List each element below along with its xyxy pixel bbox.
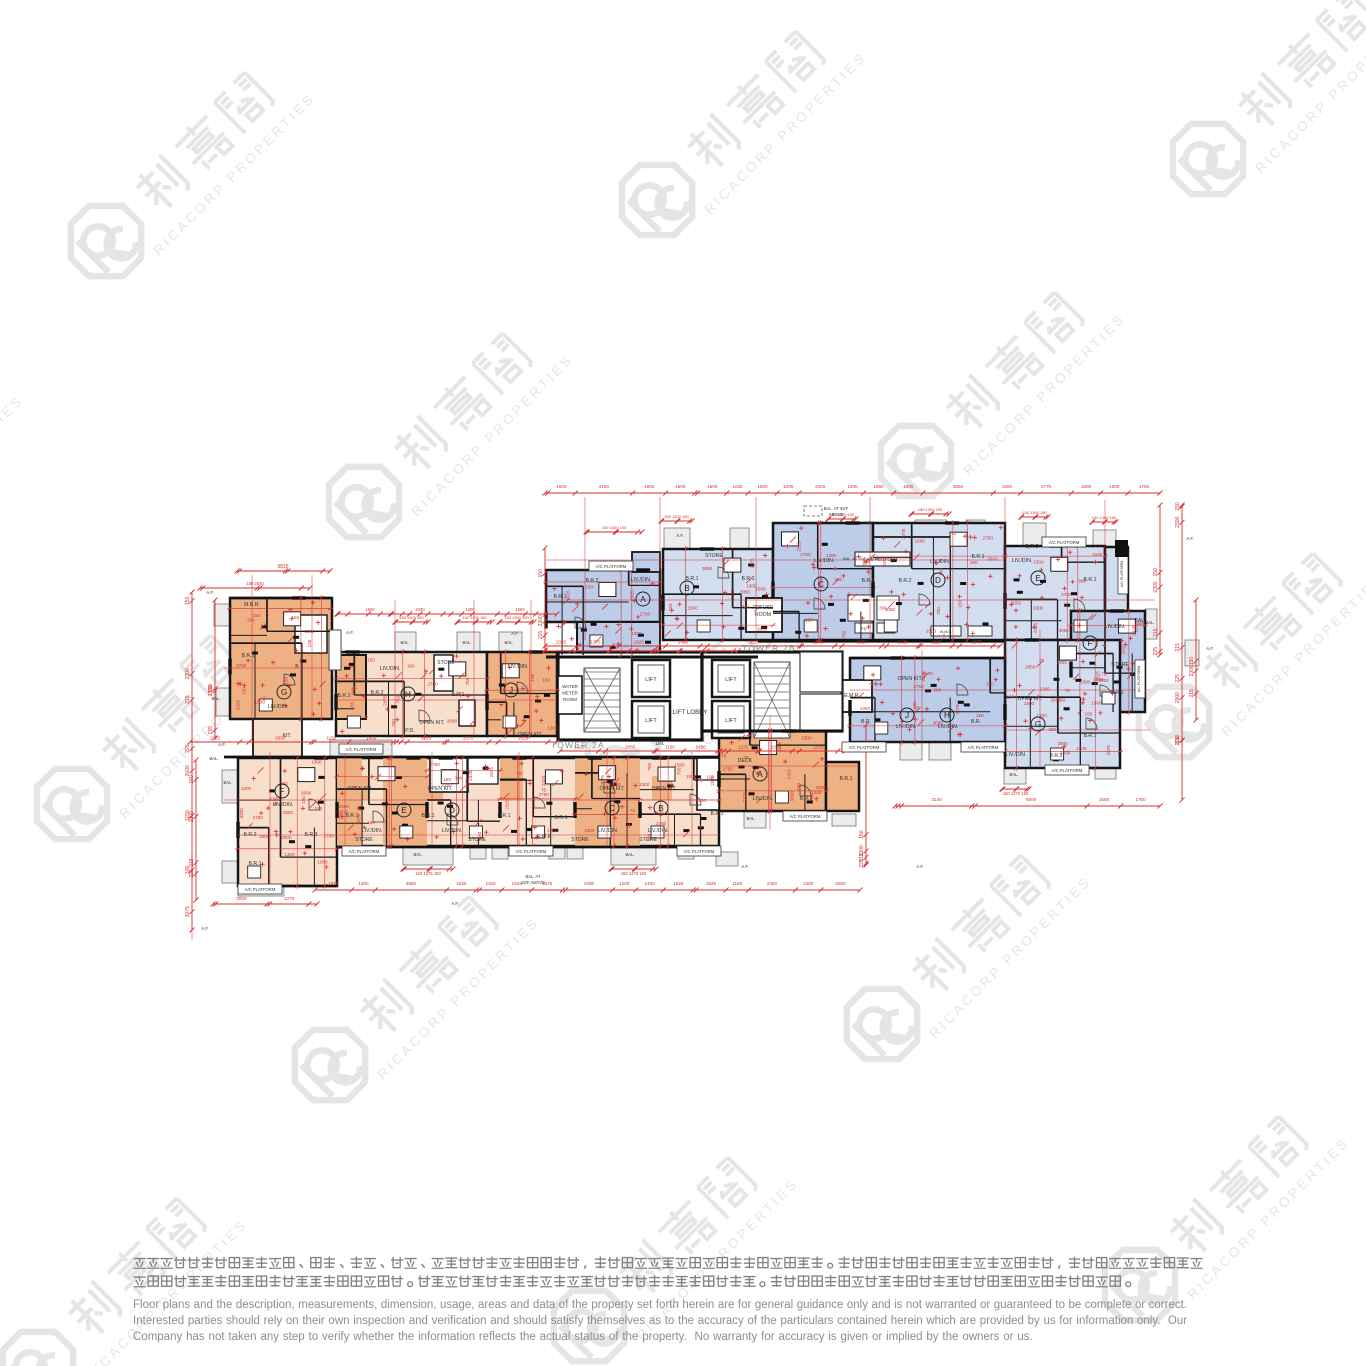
svg-text:BAL. AT 32/F ABOVE: BAL. AT 32/F ABOVE: [843, 556, 881, 561]
svg-text:B.R.2: B.R.2: [1026, 544, 1039, 550]
svg-text:LIV./DIN.: LIV./DIN.: [1105, 624, 1126, 630]
svg-text:LIFT: LIFT: [645, 677, 657, 683]
svg-text:1450: 1450: [366, 736, 377, 741]
svg-text:3300: 3300: [789, 791, 794, 802]
svg-text:1500: 1500: [254, 699, 265, 704]
svg-text:750: 750: [841, 630, 846, 638]
svg-text:B.R.1: B.R.1: [452, 692, 465, 698]
svg-text:2600: 2600: [757, 626, 768, 631]
svg-text:1200: 1200: [465, 607, 475, 612]
svg-text:1600: 1600: [757, 484, 768, 489]
svg-text:LIV./DIN.: LIV./DIN.: [753, 796, 774, 802]
svg-text:75: 75: [1039, 658, 1045, 663]
svg-text:3000: 3000: [236, 896, 247, 901]
svg-text:150: 150: [367, 820, 375, 825]
svg-text:1500: 1500: [283, 810, 294, 815]
svg-text:B.R.1: B.R.1: [711, 811, 724, 817]
svg-text:A/C PLATFORM: A/C PLATFORM: [349, 849, 380, 854]
svg-text:1300: 1300: [1076, 746, 1087, 751]
svg-text:225: 225: [189, 869, 195, 878]
svg-text:1400: 1400: [644, 881, 655, 886]
svg-text:215: 215: [185, 695, 191, 704]
svg-text:A.F.: A.F.: [864, 520, 872, 525]
svg-text:1500: 1500: [915, 538, 926, 543]
svg-text:B.R.3: B.R.3: [305, 832, 318, 838]
svg-text:1300: 1300: [305, 629, 316, 634]
svg-text:2600: 2600: [816, 785, 827, 790]
svg-text:2750: 2750: [253, 815, 264, 820]
svg-text:1150: 1150: [732, 881, 742, 886]
svg-text:750: 750: [677, 767, 682, 775]
svg-text:H: H: [405, 690, 411, 699]
svg-text:1300: 1300: [584, 828, 595, 833]
svg-text:1300: 1300: [1040, 687, 1051, 692]
svg-text:B.R.1: B.R.1: [498, 813, 511, 819]
svg-text:300: 300: [247, 617, 255, 622]
svg-text:LIFT: LIFT: [645, 718, 657, 724]
svg-text:1300: 1300: [1033, 606, 1044, 611]
svg-text:1300: 1300: [241, 786, 252, 791]
svg-text:225: 225: [1175, 674, 1181, 683]
svg-text:2750: 2750: [430, 762, 441, 767]
svg-text:2600: 2600: [1057, 741, 1068, 746]
svg-text:1600: 1600: [903, 484, 914, 489]
svg-text:REFUSE: REFUSE: [752, 605, 774, 611]
svg-text:3150: 3150: [599, 484, 610, 489]
svg-text:F: F: [279, 787, 284, 796]
svg-text:2325: 2325: [730, 589, 735, 600]
svg-text:BAL.: BAL.: [400, 640, 409, 645]
svg-text:BAL.: BAL.: [462, 640, 471, 645]
svg-text:2325: 2325: [787, 769, 792, 780]
svg-text:75: 75: [1101, 672, 1107, 677]
svg-text:1650: 1650: [857, 640, 868, 645]
svg-text:B.R.1: B.R.1: [1084, 733, 1097, 739]
svg-text:75: 75: [721, 754, 727, 759]
svg-text:1200: 1200: [358, 881, 369, 886]
svg-text:150: 150: [1006, 695, 1014, 700]
svg-text:LIFT LOBBY: LIFT LOBBY: [673, 709, 708, 716]
svg-text:BAL. AT: BAL. AT: [525, 874, 540, 879]
svg-text:A.F.: A.F.: [916, 864, 924, 869]
svg-text:75: 75: [517, 771, 523, 776]
svg-text:150 1375 150: 150 1375 150: [1003, 791, 1029, 796]
svg-text:2600: 2600: [301, 791, 312, 796]
svg-text:150 1300 150: 150 1300 150: [664, 514, 689, 519]
svg-text:LIV./DIN.: LIV./DIN.: [814, 558, 835, 564]
svg-text:KIT.: KIT.: [283, 733, 292, 739]
svg-text:150: 150: [291, 615, 299, 620]
svg-text:2000: 2000: [1175, 692, 1181, 703]
svg-text:BAL. AT 32/F: BAL. AT 32/F: [824, 506, 849, 511]
svg-text:BAL.: BAL.: [209, 756, 218, 761]
svg-text:2325: 2325: [1121, 644, 1126, 655]
svg-text:BAL.: BAL.: [223, 780, 232, 785]
svg-text:150: 150: [585, 585, 593, 590]
svg-text:B.R.: B.R.: [971, 719, 981, 725]
svg-text:150: 150: [283, 676, 288, 684]
svg-text:LIV./DIN.: LIV./DIN.: [930, 559, 951, 565]
svg-text:D: D: [935, 576, 941, 585]
svg-text:A/C PLATFORM: A/C PLATFORM: [790, 814, 821, 819]
svg-text:OPEN KIT.: OPEN KIT.: [897, 676, 922, 682]
svg-text:1200: 1200: [619, 881, 630, 886]
svg-text:TOWER 2B: TOWER 2B: [742, 643, 796, 653]
svg-text:OPEN KIT.: OPEN KIT.: [427, 786, 452, 792]
svg-text:75: 75: [951, 531, 957, 536]
svg-text:2750: 2750: [913, 684, 924, 689]
svg-text:P.D.: P.D.: [405, 728, 414, 734]
svg-text:2075: 2075: [901, 528, 906, 539]
svg-text:300: 300: [698, 798, 706, 803]
svg-text:1375: 1375: [463, 736, 474, 741]
svg-text:1500: 1500: [740, 605, 751, 610]
svg-text:G: G: [1035, 720, 1041, 729]
svg-text:1650: 1650: [873, 484, 884, 489]
svg-text:2325: 2325: [464, 778, 469, 789]
svg-text:2325: 2325: [505, 799, 510, 810]
svg-text:2300: 2300: [1153, 581, 1159, 592]
svg-text:B: B: [295, 664, 299, 670]
svg-text:1500: 1500: [1092, 552, 1103, 557]
svg-text:150: 150: [314, 806, 322, 811]
svg-text:150: 150: [970, 560, 978, 565]
svg-text:1300: 1300: [547, 725, 558, 730]
svg-text:150: 150: [307, 639, 312, 647]
svg-text:A.F.: A.F.: [741, 864, 749, 869]
svg-text:3140: 3140: [931, 797, 942, 802]
svg-text:150: 150: [350, 701, 355, 709]
svg-text:150: 150: [859, 830, 865, 839]
svg-text:1325: 1325: [556, 640, 567, 645]
svg-text:1300: 1300: [1033, 559, 1044, 564]
svg-text:1300: 1300: [1080, 680, 1091, 685]
svg-text:1500: 1500: [686, 774, 697, 779]
svg-text:STORE: STORE: [437, 660, 455, 666]
svg-text:150 1300 150: 150 1300 150: [918, 507, 943, 512]
svg-text:150 1300 150: 150 1300 150: [1092, 515, 1117, 520]
svg-text:2750: 2750: [1061, 592, 1072, 597]
svg-text:LIV./DIN.: LIV./DIN.: [380, 666, 401, 672]
svg-text:OPEN KIT.: OPEN KIT.: [651, 786, 676, 792]
svg-text:C: C: [609, 804, 615, 813]
svg-text:2600: 2600: [259, 834, 270, 839]
svg-text:A/C PLATFORM: A/C PLATFORM: [1120, 561, 1124, 587]
svg-text:B.R.1: B.R.1: [742, 576, 755, 582]
svg-text:1525: 1525: [673, 881, 684, 886]
svg-text:BAL.: BAL.: [746, 816, 755, 821]
svg-text:215: 215: [1189, 689, 1195, 698]
svg-text:150: 150: [542, 677, 550, 682]
svg-text:2750: 2750: [640, 612, 651, 617]
svg-text:1500: 1500: [801, 736, 812, 741]
svg-text:1500: 1500: [922, 671, 933, 676]
svg-text:2750: 2750: [236, 663, 247, 668]
svg-text:LIFT: LIFT: [725, 718, 737, 724]
svg-text:B.R.1: B.R.1: [972, 554, 985, 560]
svg-text:STORE: STORE: [468, 837, 486, 843]
svg-text:1600: 1600: [707, 484, 718, 489]
svg-text:STORE: STORE: [639, 837, 657, 843]
svg-text:75: 75: [1065, 688, 1071, 693]
svg-text:150: 150: [530, 673, 535, 681]
svg-text:STORE: STORE: [705, 553, 723, 559]
svg-text:225: 225: [185, 744, 191, 753]
svg-text:P.D.: P.D.: [861, 627, 868, 631]
svg-text:DN.: DN.: [656, 741, 665, 747]
svg-text:B.R.1: B.R.1: [840, 776, 853, 782]
svg-text:2325: 2325: [630, 590, 635, 601]
svg-text:1150: 1150: [486, 881, 496, 886]
svg-text:C: C: [818, 580, 824, 589]
svg-text:1600: 1600: [675, 484, 686, 489]
svg-text:F: F: [1087, 639, 1092, 648]
svg-text:2325: 2325: [1131, 625, 1136, 636]
svg-text:2300: 2300: [1175, 517, 1181, 528]
svg-text:B.R.1: B.R.1: [555, 815, 568, 821]
svg-text:1150: 1150: [326, 736, 336, 741]
svg-text:BAL.: BAL.: [211, 696, 220, 701]
svg-text:300: 300: [933, 687, 941, 692]
svg-text:2300: 2300: [185, 668, 191, 679]
svg-text:TOWER 2A: TOWER 2A: [551, 740, 605, 750]
svg-text:1225: 1225: [738, 745, 749, 750]
svg-text:5815: 5815: [277, 564, 288, 570]
svg-text:75: 75: [630, 808, 636, 813]
svg-text:A: A: [640, 595, 646, 604]
svg-text:LIV./DIN.: LIV./DIN.: [442, 828, 463, 834]
svg-text:150: 150: [350, 687, 355, 695]
svg-text:1500: 1500: [1091, 700, 1102, 705]
svg-text:215: 215: [208, 726, 214, 735]
svg-text:A.F.: A.F.: [511, 631, 519, 636]
svg-text:2600: 2600: [447, 718, 458, 723]
svg-text:1300: 1300: [639, 782, 650, 787]
svg-text:150: 150: [976, 713, 984, 718]
svg-text:2400: 2400: [584, 881, 595, 886]
svg-text:150: 150: [443, 777, 451, 782]
svg-text:B.R.2: B.R.2: [1050, 753, 1063, 759]
svg-text:1300: 1300: [926, 629, 937, 634]
svg-text:215: 215: [538, 631, 544, 640]
svg-text:J: J: [509, 686, 513, 695]
svg-text:750: 750: [465, 677, 470, 685]
svg-text:B.R.1: B.R.1: [422, 813, 435, 819]
svg-text:B.R.1: B.R.1: [242, 653, 255, 659]
svg-text:750: 750: [936, 607, 941, 615]
svg-text:3050: 3050: [702, 566, 713, 571]
svg-text:B.R.2: B.R.2: [800, 796, 813, 802]
svg-text:150: 150: [805, 618, 813, 623]
svg-text:A/C PLATFORM: A/C PLATFORM: [516, 849, 547, 854]
svg-text:2300: 2300: [538, 615, 544, 626]
svg-text:150: 150: [538, 569, 544, 578]
svg-text:5000: 5000: [1026, 797, 1037, 802]
svg-text:2075: 2075: [600, 775, 605, 786]
svg-text:1300: 1300: [311, 760, 322, 765]
svg-text:B.R.1: B.R.1: [1111, 690, 1124, 696]
svg-text:150: 150: [338, 812, 343, 820]
svg-text:1300: 1300: [284, 852, 295, 857]
svg-text:150 1300 150: 150 1300 150: [462, 615, 487, 620]
svg-text:1375: 1375: [971, 640, 982, 645]
svg-text:2400: 2400: [767, 881, 778, 886]
svg-text:1300: 1300: [317, 859, 328, 864]
svg-text:150: 150: [957, 599, 962, 607]
svg-text:3650: 3650: [406, 881, 417, 886]
svg-text:LIV./DIN.: LIV./DIN.: [938, 724, 959, 730]
svg-text:2750: 2750: [324, 834, 335, 839]
svg-text:OPEN KIT.: OPEN KIT.: [347, 786, 372, 792]
svg-text:225: 225: [859, 859, 865, 868]
svg-text:1325: 1325: [931, 640, 942, 645]
svg-text:2600: 2600: [281, 835, 292, 840]
svg-text:2750: 2750: [983, 535, 994, 540]
svg-text:A.F.: A.F.: [1186, 536, 1194, 541]
svg-text:3050: 3050: [1059, 628, 1070, 633]
svg-text:2325: 2325: [777, 742, 782, 753]
svg-text:2075: 2075: [882, 557, 887, 568]
svg-text:2050: 2050: [625, 745, 636, 750]
svg-text:BAL.: BAL.: [413, 852, 422, 857]
svg-text:2750: 2750: [539, 792, 550, 797]
svg-text:LIV./DIN.: LIV./DIN.: [1012, 558, 1033, 564]
svg-text:150 1300 150: 150 1300 150: [504, 615, 529, 620]
svg-text:1550: 1550: [515, 607, 525, 612]
svg-text:3075: 3075: [185, 906, 191, 917]
svg-text:A.F.: A.F.: [1206, 646, 1214, 651]
svg-text:150: 150: [1058, 697, 1066, 702]
svg-text:2600: 2600: [1057, 660, 1068, 665]
svg-text:A/C PLATFORM: A/C PLATFORM: [1137, 666, 1141, 692]
svg-text:150 2640: 150 2640: [246, 581, 264, 586]
svg-text:3050: 3050: [885, 607, 896, 612]
svg-text:ROOM: ROOM: [563, 697, 577, 702]
svg-text:H: H: [944, 711, 950, 720]
svg-text:E: E: [1035, 574, 1041, 583]
svg-text:2075: 2075: [383, 695, 388, 706]
svg-text:2300: 2300: [208, 685, 214, 696]
svg-text:150: 150: [668, 603, 673, 611]
svg-text:A/C PLATFORM: A/C PLATFORM: [346, 747, 377, 752]
svg-text:150 1300 150: 150 1300 150: [602, 525, 627, 530]
svg-text:2325: 2325: [797, 541, 802, 552]
svg-text:150 1375 150: 150 1375 150: [415, 871, 441, 876]
svg-text:1500: 1500: [674, 763, 685, 768]
svg-text:2075: 2075: [955, 704, 960, 715]
svg-text:LIV./DIN.: LIV./DIN.: [1006, 752, 1027, 758]
svg-text:WATER: WATER: [562, 684, 578, 689]
svg-text:A/C PLATFORM: A/C PLATFORM: [684, 849, 715, 854]
svg-text:LIV./DIN.: LIV./DIN.: [648, 828, 669, 834]
svg-text:STORE: STORE: [355, 837, 373, 843]
svg-text:150: 150: [1175, 502, 1181, 511]
svg-text:LIV./DIN.: LIV./DIN.: [508, 664, 529, 670]
svg-text:ABOVE: ABOVE: [829, 512, 844, 517]
svg-text:1150: 1150: [732, 484, 742, 489]
svg-text:2430: 2430: [415, 607, 425, 612]
svg-text:1300: 1300: [631, 631, 642, 636]
svg-text:1225: 1225: [421, 736, 432, 741]
svg-text:3050: 3050: [740, 590, 751, 595]
svg-text:B.R.1: B.R.1: [249, 861, 262, 867]
svg-text:2000: 2000: [835, 881, 846, 886]
svg-text:150 1375 150: 150 1375 150: [621, 871, 647, 876]
svg-text:B: B: [684, 584, 690, 593]
svg-text:A/C PLATFORM: A/C PLATFORM: [245, 887, 276, 892]
svg-text:LIV./DIN.: LIV./DIN.: [268, 704, 289, 710]
svg-text:LIFT: LIFT: [725, 677, 737, 683]
svg-text:A: A: [757, 770, 763, 779]
svg-text:3300: 3300: [239, 808, 244, 819]
svg-text:2325: 2325: [541, 776, 546, 787]
svg-text:2300: 2300: [189, 811, 195, 822]
svg-text:300: 300: [454, 775, 462, 780]
svg-text:2775: 2775: [1041, 484, 1052, 489]
svg-text:2600: 2600: [987, 557, 998, 562]
svg-text:1500: 1500: [339, 804, 350, 809]
svg-text:215: 215: [1153, 628, 1159, 637]
svg-text:2325: 2325: [235, 699, 240, 710]
svg-text:J: J: [905, 711, 909, 720]
svg-text:215: 215: [189, 858, 195, 867]
svg-text:150: 150: [367, 658, 375, 663]
svg-text:150: 150: [242, 687, 247, 695]
svg-text:150: 150: [1189, 657, 1195, 666]
svg-text:150 1300 150: 150 1300 150: [399, 615, 424, 620]
svg-text:A/C PLATFORM: A/C PLATFORM: [968, 745, 999, 750]
svg-text:DECK: DECK: [738, 758, 753, 764]
svg-text:E.M.R.: E.M.R.: [844, 693, 860, 699]
svg-text:BAL.: BAL.: [504, 640, 513, 645]
svg-text:LIV./DIN.: LIV./DIN.: [631, 577, 652, 583]
svg-text:1500: 1500: [1002, 484, 1013, 489]
svg-text:A.F.: A.F.: [346, 630, 354, 635]
svg-text:150: 150: [407, 664, 415, 669]
svg-text:B.R.1: B.R.1: [554, 594, 567, 600]
svg-text:150 1300 150: 150 1300 150: [1022, 510, 1047, 515]
svg-text:2325: 2325: [742, 792, 747, 803]
svg-text:2750: 2750: [723, 767, 734, 772]
svg-text:A/C PLATFORM: A/C PLATFORM: [596, 564, 627, 569]
svg-text:1300: 1300: [803, 881, 814, 886]
svg-text:LIV./DIN.: LIV./DIN.: [273, 802, 294, 808]
svg-text:1875: 1875: [328, 881, 339, 886]
svg-text:A.F.: A.F.: [676, 533, 684, 538]
svg-text:B.R.1: B.R.1: [346, 813, 359, 819]
svg-text:1800: 1800: [644, 484, 655, 489]
svg-text:150: 150: [1085, 711, 1093, 716]
svg-text:750: 750: [391, 719, 396, 727]
svg-text:A/C PLATFORM: A/C PLATFORM: [849, 745, 880, 750]
svg-text:2050: 2050: [1025, 665, 1036, 670]
svg-text:2075: 2075: [749, 558, 754, 569]
svg-text:2750: 2750: [656, 821, 667, 826]
svg-text:1300: 1300: [547, 827, 558, 832]
svg-text:2325: 2325: [815, 484, 826, 489]
svg-text:B.R.: B.R.: [861, 719, 871, 725]
svg-text:B.R.2: B.R.2: [371, 690, 384, 696]
svg-text:METER: METER: [562, 691, 579, 696]
svg-text:STORE: STORE: [571, 837, 589, 843]
svg-text:A/C PLATFORM: A/C PLATFORM: [1049, 540, 1080, 545]
svg-text:BAL.: BAL.: [1009, 772, 1018, 777]
svg-text:B.R.2: B.R.2: [244, 832, 257, 838]
svg-text:1750: 1750: [1139, 484, 1150, 489]
svg-text:1625: 1625: [813, 745, 824, 750]
svg-text:750: 750: [796, 783, 801, 791]
svg-text:1500: 1500: [688, 606, 699, 611]
